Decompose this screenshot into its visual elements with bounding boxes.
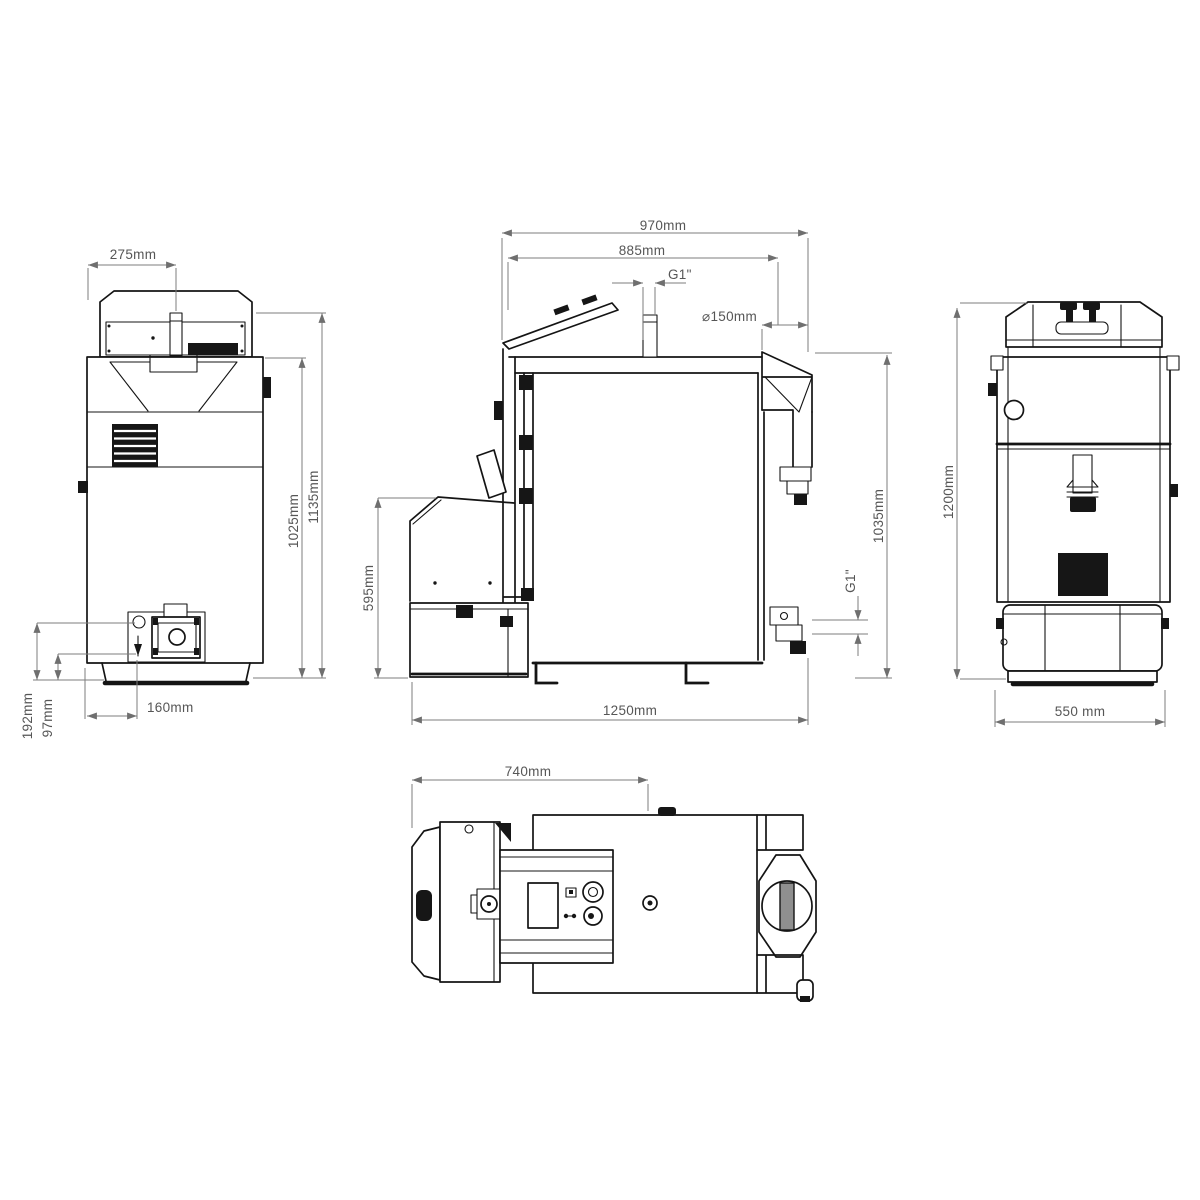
- dim-label-1200: 1200mm: [941, 465, 956, 519]
- drawing-page: 275mm 1135mm 1025mm 192mm 97mm 160mm: [0, 0, 1200, 1200]
- dim-label-970: 970mm: [640, 218, 687, 233]
- back-view: 1200mm 550 mm: [941, 302, 1179, 727]
- back-fan-housing: [1058, 553, 1108, 596]
- dim-label-flue-diameter: ⌀150mm: [702, 309, 757, 324]
- top-flue-assembly: [757, 815, 816, 1002]
- control-display: [528, 883, 558, 928]
- dim-label-1025: 1025mm: [286, 494, 301, 548]
- front-side-latch: [78, 481, 88, 493]
- top-control-panel: [500, 850, 613, 963]
- dim-label-g1-return: G1": [843, 569, 858, 593]
- back-top-section: [1006, 302, 1162, 347]
- side-auger-chute: [477, 450, 506, 498]
- top-view: 740mm: [412, 764, 816, 1002]
- boiler-technical-drawing: 275mm 1135mm 1025mm 192mm 97mm 160mm: [0, 0, 1200, 1200]
- front-chimney-stub: [170, 313, 182, 356]
- dim-label-595: 595mm: [361, 565, 376, 612]
- front-burner-module: [128, 604, 205, 662]
- dim-label-1135: 1135mm: [306, 470, 321, 523]
- dim-label-740: 740mm: [505, 764, 552, 779]
- dim-label-160: 160mm: [147, 700, 194, 715]
- front-ignition-port: [133, 616, 145, 628]
- side-hopper-lid: [503, 294, 618, 349]
- side-flue-duct: [762, 352, 812, 505]
- side-flow-pipe: [643, 315, 657, 357]
- dim-label-550: 550 mm: [1055, 704, 1106, 719]
- side-burner-unit: [410, 450, 528, 677]
- control-knob-upper: [583, 882, 603, 902]
- dim-label-885: 885mm: [619, 243, 666, 258]
- side-base-and-feet: [533, 663, 762, 683]
- front-side-handle: [263, 377, 271, 398]
- dim-label-1035: 1035mm: [871, 489, 886, 543]
- side-return-fitting: [770, 607, 806, 654]
- dim-label-g1-flow: G1": [668, 267, 692, 282]
- side-back-wall: [758, 373, 764, 660]
- dim-label-97: 97mm: [40, 699, 55, 738]
- front-vent-grille: [188, 343, 238, 355]
- back-lower-section: [996, 605, 1169, 684]
- front-louver-grille: [112, 424, 158, 467]
- dim-label-192: 192mm: [20, 693, 35, 740]
- dim-label-1250: 1250mm: [603, 703, 657, 718]
- side-door-latch: [494, 401, 503, 420]
- front-view: 275mm 1135mm 1025mm 192mm 97mm 160mm: [20, 247, 326, 739]
- front-plinth: [102, 663, 250, 683]
- dim-label-275: 275mm: [110, 247, 157, 262]
- back-port-plug: [1005, 401, 1024, 420]
- side-view: 970mm 885mm G1" ⌀150mm 595mm 1035mm G1": [361, 218, 892, 725]
- back-body: [988, 347, 1179, 602]
